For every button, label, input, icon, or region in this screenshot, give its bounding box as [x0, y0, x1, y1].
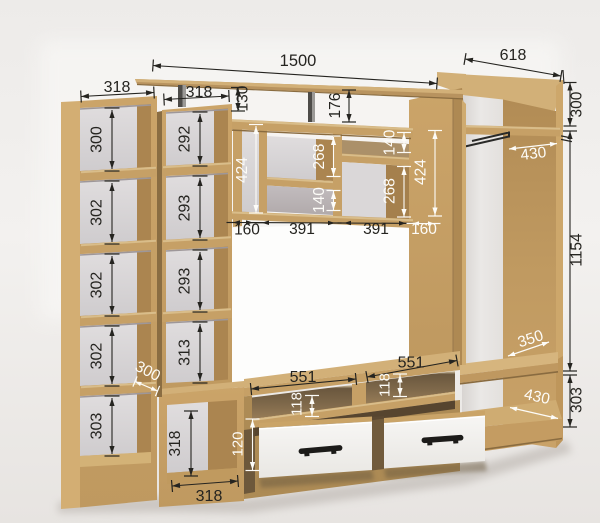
svg-text:318: 318: [167, 431, 184, 457]
svg-text:318: 318: [104, 79, 131, 96]
svg-text:292: 292: [177, 126, 194, 153]
svg-text:430: 430: [520, 144, 548, 164]
svg-text:618: 618: [500, 47, 527, 64]
svg-text:293: 293: [177, 268, 194, 295]
svg-text:268: 268: [382, 178, 399, 204]
svg-text:303: 303: [569, 387, 586, 413]
svg-text:176: 176: [327, 93, 344, 119]
svg-text:551: 551: [398, 355, 425, 372]
svg-text:118: 118: [289, 392, 306, 416]
svg-text:1500: 1500: [280, 52, 317, 70]
svg-text:118: 118: [377, 373, 394, 397]
svg-text:300: 300: [569, 91, 586, 117]
svg-text:268: 268: [311, 144, 328, 170]
svg-text:1154: 1154: [569, 233, 586, 267]
svg-text:313: 313: [177, 339, 194, 366]
svg-text:130: 130: [235, 85, 252, 111]
svg-text:302: 302: [89, 199, 106, 226]
svg-text:300: 300: [89, 126, 106, 153]
svg-text:303: 303: [89, 413, 106, 440]
svg-text:160: 160: [234, 222, 260, 239]
svg-text:391: 391: [289, 221, 315, 238]
svg-text:318: 318: [186, 84, 213, 101]
svg-text:293: 293: [177, 195, 194, 222]
svg-text:302: 302: [89, 272, 106, 299]
svg-text:140: 140: [311, 187, 328, 213]
svg-text:140: 140: [382, 129, 399, 155]
svg-text:424: 424: [413, 159, 430, 185]
svg-text:318: 318: [196, 488, 223, 505]
svg-text:391: 391: [363, 221, 389, 238]
svg-text:120: 120: [230, 431, 247, 456]
svg-text:424: 424: [234, 157, 251, 183]
svg-text:551: 551: [290, 369, 317, 386]
svg-text:302: 302: [89, 343, 106, 370]
svg-text:160: 160: [411, 221, 437, 238]
